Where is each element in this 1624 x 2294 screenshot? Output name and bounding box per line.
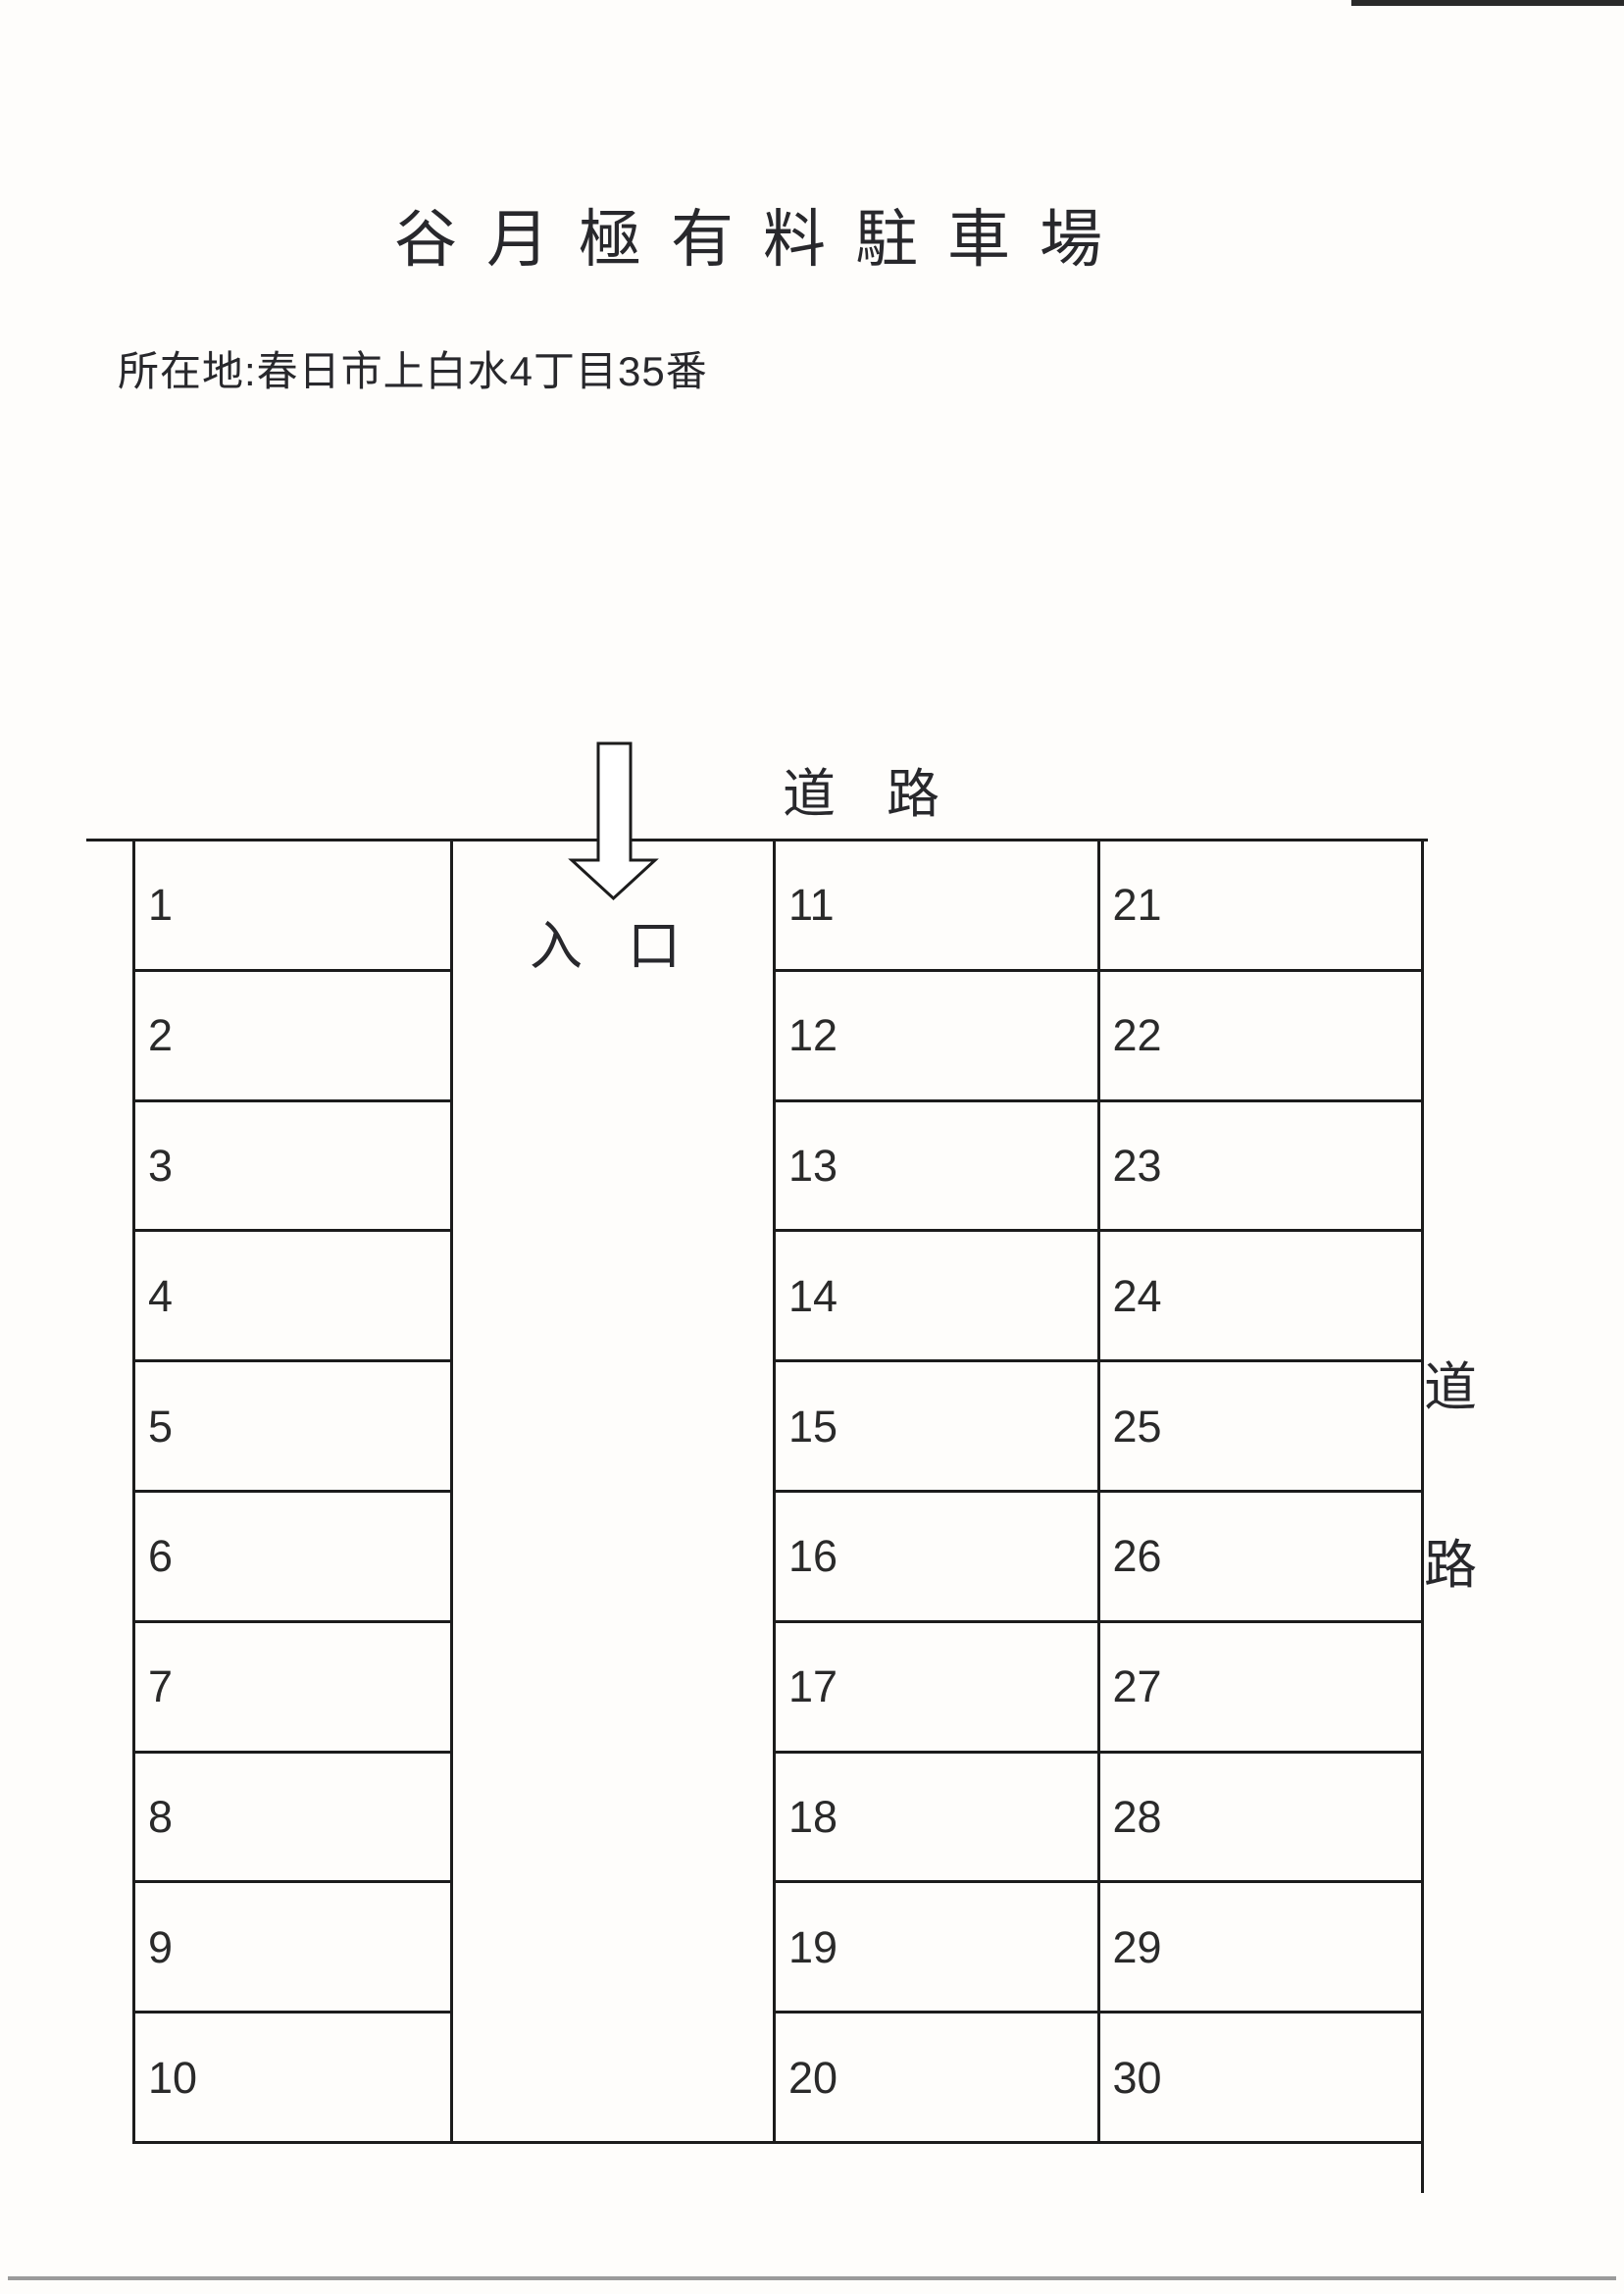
road-label-top: 道 路	[783, 750, 939, 828]
parking-space-cell: 5	[135, 1362, 450, 1493]
entrance-label-char: 口	[628, 902, 681, 980]
scan-artifact-bottom	[8, 2276, 1616, 2280]
parking-space-number: 6	[148, 1534, 173, 1578]
parking-space-row: 1727	[776, 1623, 1421, 1754]
parking-space-cell: 18	[776, 1754, 1097, 1881]
parking-columns-right-block: 1121122213231424152516261727182819292030	[773, 839, 1424, 2144]
parking-space-row: 1626	[776, 1493, 1421, 1623]
parking-space-cell: 27	[1097, 1623, 1422, 1751]
parking-space-cell: 12	[776, 972, 1097, 1099]
parking-space-number: 9	[148, 1925, 173, 1969]
road-label-right-char: 道	[1424, 1361, 1483, 1414]
parking-space-cell: 8	[135, 1754, 450, 1884]
entrance-arrow-icon	[564, 734, 667, 905]
parking-space-number: 27	[1113, 1664, 1162, 1708]
parking-space-number: 18	[788, 1795, 837, 1839]
parking-space-row: 1929	[776, 1883, 1421, 2014]
parking-space-row: 1424	[776, 1232, 1421, 1362]
parking-space-number: 15	[788, 1404, 837, 1449]
parking-space-cell: 19	[776, 1883, 1097, 2011]
parking-space-number: 20	[788, 2056, 837, 2100]
parking-space-row: 1828	[776, 1754, 1421, 1884]
address-line: 所在地:春日市上白水4丁目35番	[118, 338, 708, 398]
parking-space-number: 8	[148, 1795, 173, 1839]
parking-space-cell: 20	[776, 2014, 1097, 2141]
parking-space-row: 1525	[776, 1362, 1421, 1493]
aisle-bottom-line	[451, 2141, 776, 2144]
page-title: 谷月極有料駐車場	[394, 189, 1132, 280]
parking-space-number: 1	[148, 883, 173, 927]
parking-space-number: 4	[148, 1274, 173, 1318]
parking-space-number: 16	[788, 1534, 837, 1578]
road-label-top-char: 路	[887, 750, 939, 828]
parking-space-number: 13	[788, 1144, 837, 1188]
parking-space-cell: 6	[135, 1493, 450, 1623]
parking-space-cell: 29	[1097, 1883, 1422, 2011]
parking-space-cell: 25	[1097, 1362, 1422, 1490]
parking-space-number: 2	[148, 1013, 173, 1057]
parking-column-left: 12345678910	[132, 839, 453, 2144]
parking-space-number: 29	[1113, 1925, 1162, 1969]
parking-space-row: 1222	[776, 972, 1421, 1102]
parking-space-cell: 30	[1097, 2014, 1422, 2141]
parking-space-number: 17	[788, 1664, 837, 1708]
entrance-label-char: 入	[530, 902, 583, 980]
parking-space-number: 30	[1113, 2056, 1162, 2100]
parking-space-cell: 3	[135, 1102, 450, 1233]
parking-space-cell: 22	[1097, 972, 1422, 1099]
parking-space-cell: 28	[1097, 1754, 1422, 1881]
parking-space-number: 21	[1113, 883, 1162, 927]
parking-space-number: 23	[1113, 1144, 1162, 1188]
parking-space-number: 10	[148, 2056, 197, 2100]
parking-space-cell: 17	[776, 1623, 1097, 1751]
parking-space-cell: 16	[776, 1493, 1097, 1620]
parking-space-number: 12	[788, 1013, 837, 1057]
parking-space-cell: 23	[1097, 1102, 1422, 1230]
parking-space-cell: 2	[135, 972, 450, 1102]
parking-space-cell: 13	[776, 1102, 1097, 1230]
parking-space-row: 2030	[776, 2014, 1421, 2141]
entrance-label: 入 口	[530, 902, 681, 980]
parking-space-cell: 21	[1097, 841, 1422, 969]
parking-space-number: 26	[1113, 1534, 1162, 1578]
parking-space-cell: 10	[135, 2014, 450, 2141]
scan-artifact-top	[1351, 0, 1624, 6]
road-label-right: 道 路	[1424, 1361, 1483, 1592]
parking-space-row: 1323	[776, 1102, 1421, 1233]
parking-space-number: 22	[1113, 1013, 1162, 1057]
parking-space-cell: 9	[135, 1883, 450, 2014]
parking-space-number: 14	[788, 1274, 837, 1318]
parking-space-number: 19	[788, 1925, 837, 1969]
parking-space-cell: 15	[776, 1362, 1097, 1490]
parking-space-number: 11	[788, 883, 835, 927]
parking-space-row: 1121	[776, 841, 1421, 972]
right-boundary-stub-line	[1421, 2141, 1424, 2193]
parking-space-number: 3	[148, 1144, 173, 1188]
parking-space-number: 24	[1113, 1274, 1162, 1318]
parking-space-cell: 11	[776, 841, 1097, 969]
road-label-top-char: 道	[783, 750, 836, 828]
road-label-right-char: 路	[1424, 1539, 1483, 1592]
parking-space-cell: 26	[1097, 1493, 1422, 1620]
parking-space-cell: 4	[135, 1232, 450, 1362]
parking-space-cell: 24	[1097, 1232, 1422, 1359]
parking-space-cell: 7	[135, 1623, 450, 1754]
parking-space-number: 5	[148, 1404, 173, 1449]
parking-space-number: 7	[148, 1664, 173, 1708]
document-page: 谷月極有料駐車場 所在地:春日市上白水4丁目35番 道 路 入 口 123456…	[0, 0, 1624, 2294]
parking-space-number: 25	[1113, 1404, 1162, 1449]
parking-space-cell: 1	[135, 841, 450, 972]
parking-space-number: 28	[1113, 1795, 1162, 1839]
parking-space-cell: 14	[776, 1232, 1097, 1359]
